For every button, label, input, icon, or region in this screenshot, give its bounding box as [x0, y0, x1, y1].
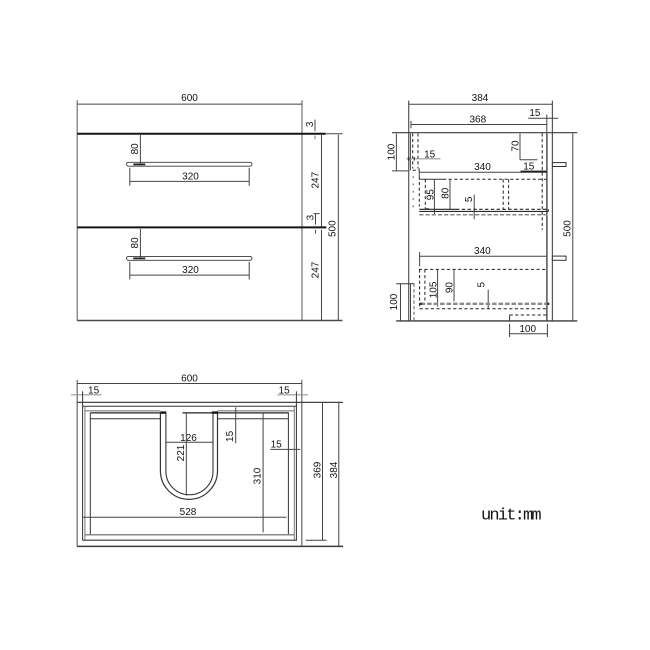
svg-text:80: 80 [130, 237, 141, 249]
svg-text:5: 5 [464, 196, 475, 202]
svg-text:247: 247 [311, 261, 322, 278]
svg-text:340: 340 [474, 162, 491, 173]
svg-text:368: 368 [469, 114, 486, 125]
svg-text:15: 15 [88, 386, 100, 397]
svg-text:unit:mm: unit:mm [481, 507, 541, 526]
svg-text:5: 5 [477, 281, 488, 287]
svg-text:3: 3 [306, 214, 317, 220]
svg-text:105: 105 [429, 281, 440, 298]
svg-text:15: 15 [529, 108, 541, 119]
svg-text:600: 600 [181, 373, 198, 384]
svg-text:80: 80 [441, 187, 452, 199]
svg-text:3: 3 [305, 121, 316, 127]
svg-text:15: 15 [225, 430, 236, 442]
svg-text:15: 15 [279, 386, 291, 397]
svg-text:100: 100 [519, 324, 536, 335]
svg-text:15: 15 [271, 439, 283, 450]
svg-text:528: 528 [180, 507, 197, 518]
svg-text:369: 369 [313, 461, 324, 478]
svg-text:247: 247 [311, 171, 322, 188]
svg-text:600: 600 [181, 93, 198, 104]
svg-text:320: 320 [182, 172, 199, 183]
svg-text:384: 384 [472, 93, 489, 104]
svg-text:221: 221 [176, 444, 187, 461]
svg-text:80: 80 [130, 143, 141, 155]
svg-text:15: 15 [424, 149, 436, 160]
svg-text:320: 320 [182, 265, 199, 276]
svg-text:70: 70 [510, 140, 521, 152]
svg-text:310: 310 [253, 467, 264, 484]
svg-text:100: 100 [387, 143, 398, 160]
svg-text:384: 384 [329, 461, 340, 478]
svg-text:500: 500 [563, 220, 574, 237]
svg-text:95: 95 [426, 189, 437, 201]
svg-text:90: 90 [445, 282, 456, 294]
svg-text:126: 126 [180, 433, 197, 444]
svg-text:500: 500 [327, 220, 338, 237]
svg-text:100: 100 [389, 293, 400, 310]
svg-text:340: 340 [474, 246, 491, 257]
